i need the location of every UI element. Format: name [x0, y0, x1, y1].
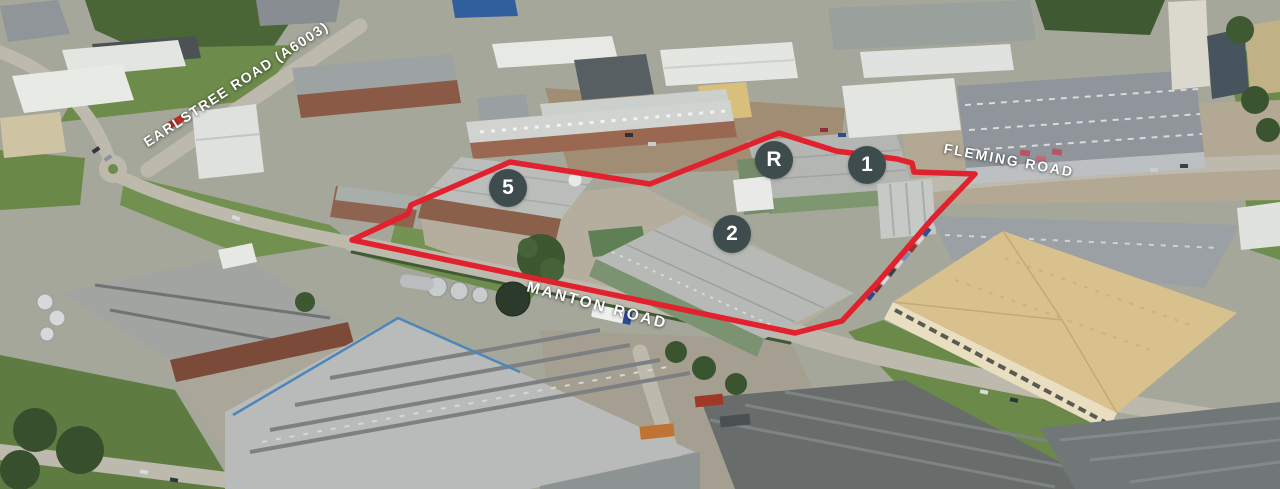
silo: [568, 173, 582, 187]
site-marker-5: 5: [489, 169, 527, 207]
aerial-site-plan: EARLSTREE ROAD (A6003) FLEMING ROAD MANT…: [0, 0, 1280, 489]
aerial-photo: [0, 0, 1280, 489]
silo-tower: [1168, 0, 1210, 90]
site-marker-2: 2: [713, 215, 751, 253]
site-marker-r: R: [755, 141, 793, 179]
site-marker-1: 1: [848, 146, 886, 184]
